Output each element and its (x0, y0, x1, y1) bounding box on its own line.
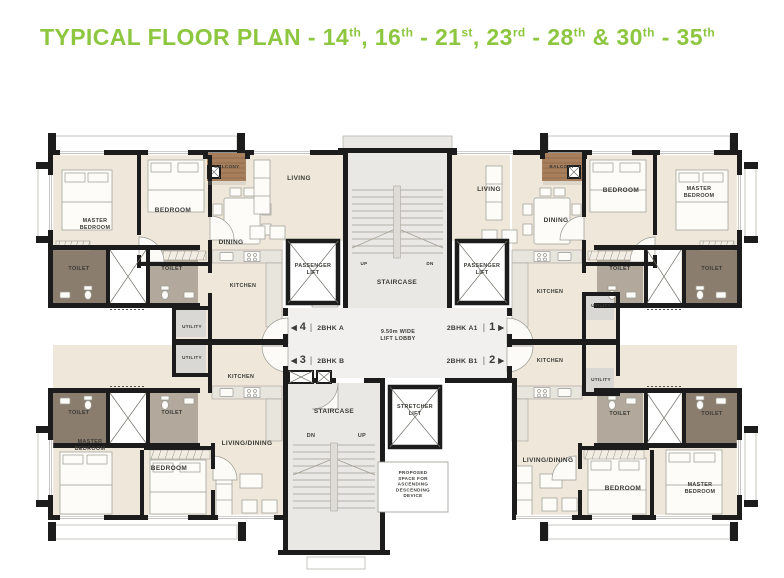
label-toilet-b-common: TOILET (161, 410, 183, 416)
label-toilet-a1-common: TOILET (609, 266, 631, 272)
label-kitchen-a: KITCHEN (230, 283, 256, 289)
label-utility-a: UTILITY (182, 324, 202, 329)
label-living-dining-b1: LIVING/DINING (523, 457, 574, 464)
label-dining-a1: DINING (544, 217, 569, 224)
label-utility-b1: UTILITY (591, 377, 611, 382)
label-kitchen-b: KITCHEN (228, 374, 254, 380)
floor-plan: MASTERBEDROOM BEDROOM BALCONY LIVING DIN… (0, 0, 784, 578)
label-kitchen-a1: KITCHEN (537, 289, 563, 295)
lift-lobby-floor (288, 308, 507, 378)
label-bedroom-b: BEDROOM (151, 465, 187, 472)
toilet-a1-master-floor (685, 250, 737, 303)
label-master-bedroom-a1: MASTERBEDROOM (684, 186, 715, 199)
bed-master-b (60, 452, 112, 514)
label-bedroom-b1: BEDROOM (605, 485, 641, 492)
label-kitchen-b1: KITCHEN (537, 358, 563, 364)
bed-bedroom-a1 (590, 160, 646, 212)
label-staircase-top-up: UP (360, 261, 367, 266)
label-bedroom-a: BEDROOM (155, 207, 191, 214)
label-toilet-b1-master: TOILET (701, 411, 723, 417)
label-utility-a1: UTILITY (591, 303, 611, 308)
label-staircase-bottom-up: UP (358, 433, 366, 439)
floor-plan-page: TYPICAL FLOOR PLAN - 14th, 16th - 21st, … (0, 0, 784, 578)
label-balcony-a1: BALCONY (549, 164, 574, 169)
label-staircase-top: STAIRCASE (377, 279, 418, 286)
label-toilet-b1-common: TOILET (609, 411, 631, 417)
label-utility-b: UTILITY (182, 355, 202, 360)
label-balcony-a: BALCONY (214, 164, 239, 169)
label-toilet-a-master: TOILET (68, 266, 90, 272)
label-staircase-bottom: STAIRCASE (314, 408, 355, 415)
label-bedroom-a1: BEDROOM (603, 187, 639, 194)
label-living-dining-b: LIVING/DINING (222, 440, 273, 447)
label-staircase-bottom-dn: DN (307, 433, 316, 439)
bed-bedroom-a (148, 160, 204, 212)
label-master-bedroom-b: MASTERBEDROOM (75, 439, 106, 452)
label-living-a: LIVING (287, 175, 311, 182)
label-lift-lobby: 9.50m WIDELIFT LOBBY (380, 329, 415, 342)
stretcher-lift-shaft (390, 387, 440, 447)
label-living-a1: LIVING (477, 186, 501, 193)
label-staircase-top-dn: DN (426, 261, 434, 266)
label-master-bedroom-a: MASTERBEDROOM (80, 218, 111, 231)
label-toilet-b-master: TOILET (68, 410, 90, 416)
label-toilet-a-common: TOILET (161, 266, 183, 272)
toilet-b1-master-floor (685, 393, 737, 443)
bed-master-a1 (676, 170, 728, 230)
label-master-bedroom-b1: MASTERBEDROOM (685, 482, 716, 495)
label-dining-a: DINING (219, 239, 244, 246)
label-toilet-a1-master: TOILET (701, 266, 723, 272)
